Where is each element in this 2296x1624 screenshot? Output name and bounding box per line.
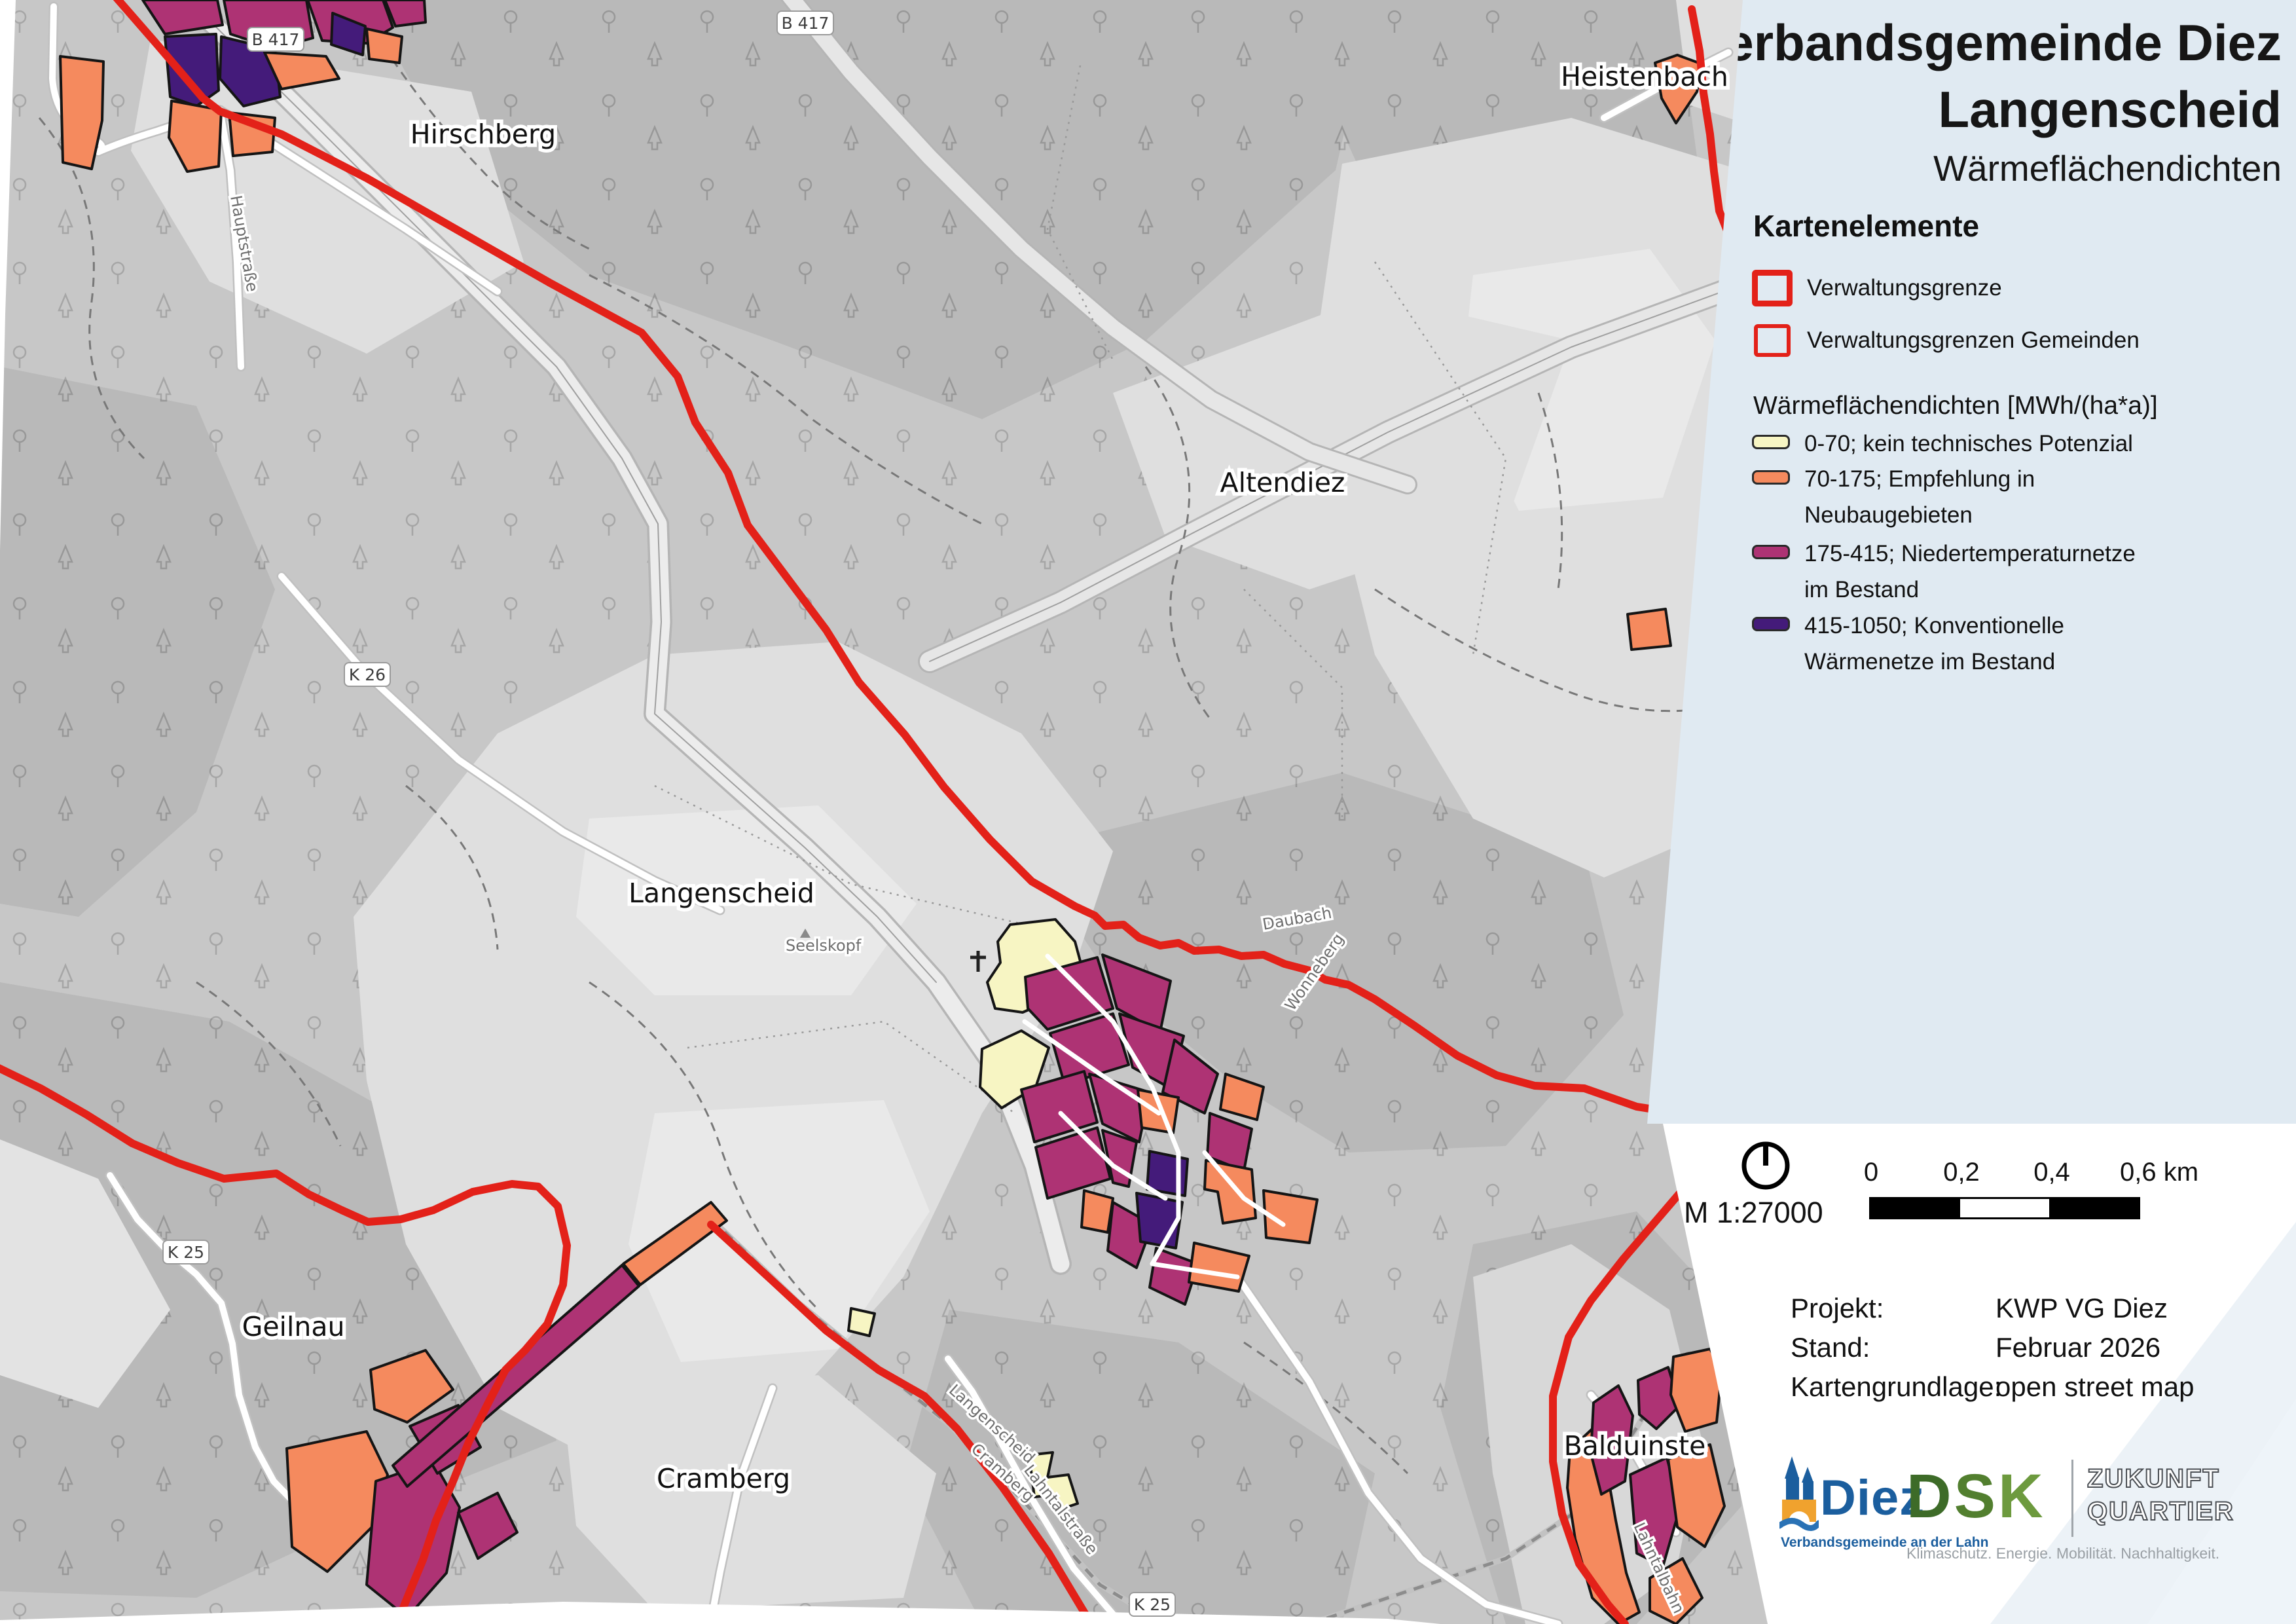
- svg-text:B 417: B 417: [782, 14, 829, 33]
- heat-swatch-magenta: [1752, 545, 1790, 559]
- badge-k26: K 26: [344, 663, 390, 686]
- heat-legend-item-70-175: 70-175; Empfehlung in Neubaugebieten: [1752, 461, 2035, 533]
- heat-item-line2: Neubaugebieten: [1804, 497, 2035, 533]
- town-label-langenscheid: Langenscheid: [629, 877, 814, 909]
- yellow-parcel-west: [848, 1308, 875, 1336]
- dsk-logo-divider: [2071, 1460, 2073, 1537]
- boundary-swatch-thick: [1752, 270, 1793, 306]
- dsk-letter-s: S: [1954, 1462, 1998, 1531]
- badge-k25-geilnau: K 25: [163, 1240, 209, 1264]
- heat-legend-item-415-1050: 415-1050; Konventionelle Wärmenetze im B…: [1752, 608, 2064, 680]
- legend-item-label: Verwaltungsgrenzen Gemeinden: [1807, 327, 2140, 354]
- town-label-balduinstein: Balduinste: [1564, 1430, 1706, 1462]
- basemap-svg: B 417 B 417 K 26 K 25 K 25 Daubach Wonne…: [0, 0, 1768, 1624]
- heat-item-label: 70-175; Empfehlung in Neubaugebieten: [1804, 461, 2035, 533]
- heat-swatch-yellow: [1752, 435, 1790, 449]
- kartengrundlage-label: Kartengrundlage:: [1791, 1371, 2001, 1403]
- scale-ticks: 0 0,2 0,4 0,6 km: [1571, 1158, 2296, 1190]
- dsk-letter-d: D: [1906, 1462, 1954, 1531]
- project-value: KWP VG Diez: [1995, 1293, 2168, 1324]
- town-label-geilnau: Geilnau: [242, 1311, 345, 1342]
- legend-item-verwaltungsgrenzen-gemeinden: Verwaltungsgrenzen Gemeinden: [1752, 322, 2140, 359]
- micro-label-seelskopf: Seelskopf: [786, 936, 862, 955]
- project-label: Projekt:: [1791, 1293, 1884, 1324]
- heat-item-label: 175-415; Niedertemperaturnetze im Bestan…: [1804, 536, 2136, 608]
- diez-castle-icon: [1779, 1451, 1819, 1533]
- heat-legend-item-175-415: 175-415; Niedertemperaturnetze im Bestan…: [1752, 536, 2136, 608]
- heat-swatch-orange: [1752, 470, 1790, 485]
- scale-tick: 0: [1864, 1158, 1878, 1187]
- stand-value: Februar 2026: [1995, 1332, 2160, 1363]
- svg-text:B 417: B 417: [252, 30, 300, 49]
- svg-text:K 25: K 25: [1134, 1595, 1171, 1614]
- scale-tick: 0,6 km: [2120, 1158, 2198, 1187]
- svg-text:K 25: K 25: [168, 1243, 204, 1262]
- legend-item-label: Verwaltungsgrenze: [1807, 275, 2002, 301]
- town-label-cramberg: Cramberg: [657, 1463, 790, 1494]
- heat-item-line1: 175-415; Niedertemperaturnetze: [1804, 536, 2136, 572]
- heat-legend-heading: Wärmeflächendichten [MWh/(ha*a)]: [1753, 392, 2158, 420]
- badge-b417-north: B 417: [777, 11, 833, 35]
- scale-ratio: M 1:27000: [1684, 1196, 1823, 1230]
- stand-label: Stand:: [1791, 1332, 1870, 1363]
- orange-parcel-east: [1628, 609, 1671, 650]
- dsk-logo-letters: DSK: [1906, 1461, 2046, 1532]
- dsk-letter-k: K: [1998, 1462, 2046, 1531]
- dsk-logo-tagline: Klimaschutz. Energie. Mobilität. Nachhal…: [1906, 1545, 2219, 1562]
- heat-item-line2: Wärmenetze im Bestand: [1804, 644, 2064, 680]
- scale-tick: 0,4: [2033, 1158, 2070, 1187]
- scale-bar: [1869, 1197, 2140, 1219]
- dsk-logo: DSK ZUKUNFT QUARTIER Klimaschutz. Energi…: [1906, 1461, 2273, 1566]
- heat-legend-item-0-70: 0-70; kein technisches Potenzial: [1752, 426, 2133, 462]
- badge-k25-south: K 25: [1129, 1593, 1175, 1616]
- scale-bar-segment: [1871, 1199, 1960, 1217]
- heat-item-label: 415-1050; Konventionelle Wärmenetze im B…: [1804, 608, 2064, 680]
- map-sheet: B 417 B 417 K 26 K 25 K 25 Daubach Wonne…: [0, 0, 2296, 1624]
- heat-item-line2: im Bestand: [1804, 572, 2136, 608]
- dsk-claim-line1: ZUKUNFT: [2087, 1462, 2234, 1495]
- town-label-altendiez: Altendiez: [1220, 467, 1345, 498]
- heat-swatch-purple: [1752, 617, 1790, 631]
- kartengrundlage-value: open street map: [1995, 1371, 2195, 1403]
- heat-item-label: 0-70; kein technisches Potenzial: [1804, 426, 2133, 462]
- boundary-swatch-thin: [1754, 324, 1791, 357]
- scale-tick: 0,2: [1943, 1158, 1980, 1187]
- dsk-logo-claim: ZUKUNFT QUARTIER: [2087, 1462, 2234, 1528]
- map-canvas: B 417 B 417 K 26 K 25 K 25 Daubach Wonne…: [0, 0, 1768, 1624]
- scale-bar-segment: [1960, 1199, 2049, 1217]
- dsk-claim-line2: QUARTIER: [2087, 1495, 2234, 1528]
- town-label-hirschberg: Hirschberg: [410, 119, 556, 150]
- legend-heading: Kartenelemente: [1753, 208, 1979, 244]
- town-label-heistenbach: Heistenbach: [1561, 61, 1728, 92]
- heat-item-line1: 70-175; Empfehlung in: [1804, 461, 2035, 497]
- heat-item-line1: 415-1050; Konventionelle: [1804, 608, 2064, 644]
- svg-text:K 26: K 26: [349, 665, 386, 684]
- scale-bar-segment: [2049, 1199, 2138, 1217]
- badge-b417-west: B 417: [247, 28, 304, 51]
- legend-item-verwaltungsgrenze: Verwaltungsgrenze: [1752, 270, 2002, 306]
